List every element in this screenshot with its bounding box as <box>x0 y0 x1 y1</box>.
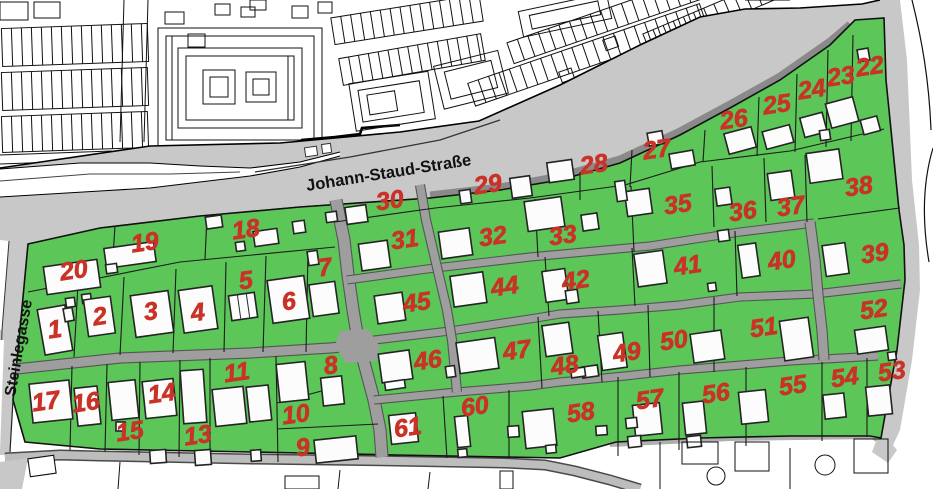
svg-text:18: 18 <box>230 214 262 246</box>
svg-text:40: 40 <box>765 245 798 277</box>
svg-text:57: 57 <box>634 384 667 416</box>
svg-text:52: 52 <box>858 294 890 326</box>
svg-text:14: 14 <box>146 378 178 410</box>
svg-text:37: 37 <box>775 191 808 223</box>
svg-text:38: 38 <box>843 171 875 203</box>
svg-text:13: 13 <box>182 420 214 452</box>
svg-text:55: 55 <box>777 370 810 402</box>
svg-text:42: 42 <box>559 265 592 297</box>
svg-text:44: 44 <box>488 271 521 303</box>
svg-text:28: 28 <box>577 149 610 181</box>
svg-text:45: 45 <box>400 287 434 319</box>
svg-text:25: 25 <box>760 89 794 121</box>
svg-text:36: 36 <box>727 196 760 228</box>
svg-text:39: 39 <box>859 238 891 270</box>
svg-text:53: 53 <box>876 356 908 388</box>
svg-text:20: 20 <box>57 255 90 287</box>
svg-text:19: 19 <box>129 227 161 259</box>
svg-text:16: 16 <box>70 387 103 419</box>
svg-text:51: 51 <box>748 312 779 344</box>
svg-text:48: 48 <box>548 350 581 382</box>
svg-text:10: 10 <box>280 399 312 431</box>
svg-text:54: 54 <box>829 362 861 394</box>
svg-text:58: 58 <box>565 397 597 429</box>
svg-text:49: 49 <box>610 337 643 369</box>
svg-text:56: 56 <box>700 378 733 410</box>
svg-text:11: 11 <box>222 357 252 388</box>
svg-text:61: 61 <box>392 412 423 444</box>
svg-text:33: 33 <box>547 220 579 252</box>
svg-text:31: 31 <box>389 224 420 256</box>
svg-text:32: 32 <box>477 221 509 253</box>
svg-text:46: 46 <box>411 345 445 377</box>
svg-text:27: 27 <box>640 134 674 166</box>
svg-text:17: 17 <box>30 386 63 418</box>
svg-text:29: 29 <box>471 169 504 201</box>
svg-text:23: 23 <box>824 61 857 93</box>
svg-text:41: 41 <box>671 250 703 282</box>
svg-text:26: 26 <box>717 104 751 136</box>
svg-text:30: 30 <box>374 185 406 217</box>
svg-text:24: 24 <box>795 74 828 106</box>
svg-text:35: 35 <box>662 189 695 221</box>
svg-text:22: 22 <box>853 51 886 83</box>
svg-text:15: 15 <box>114 416 147 448</box>
svg-text:50: 50 <box>658 325 690 357</box>
svg-text:47: 47 <box>500 335 534 367</box>
svg-text:60: 60 <box>459 391 491 423</box>
